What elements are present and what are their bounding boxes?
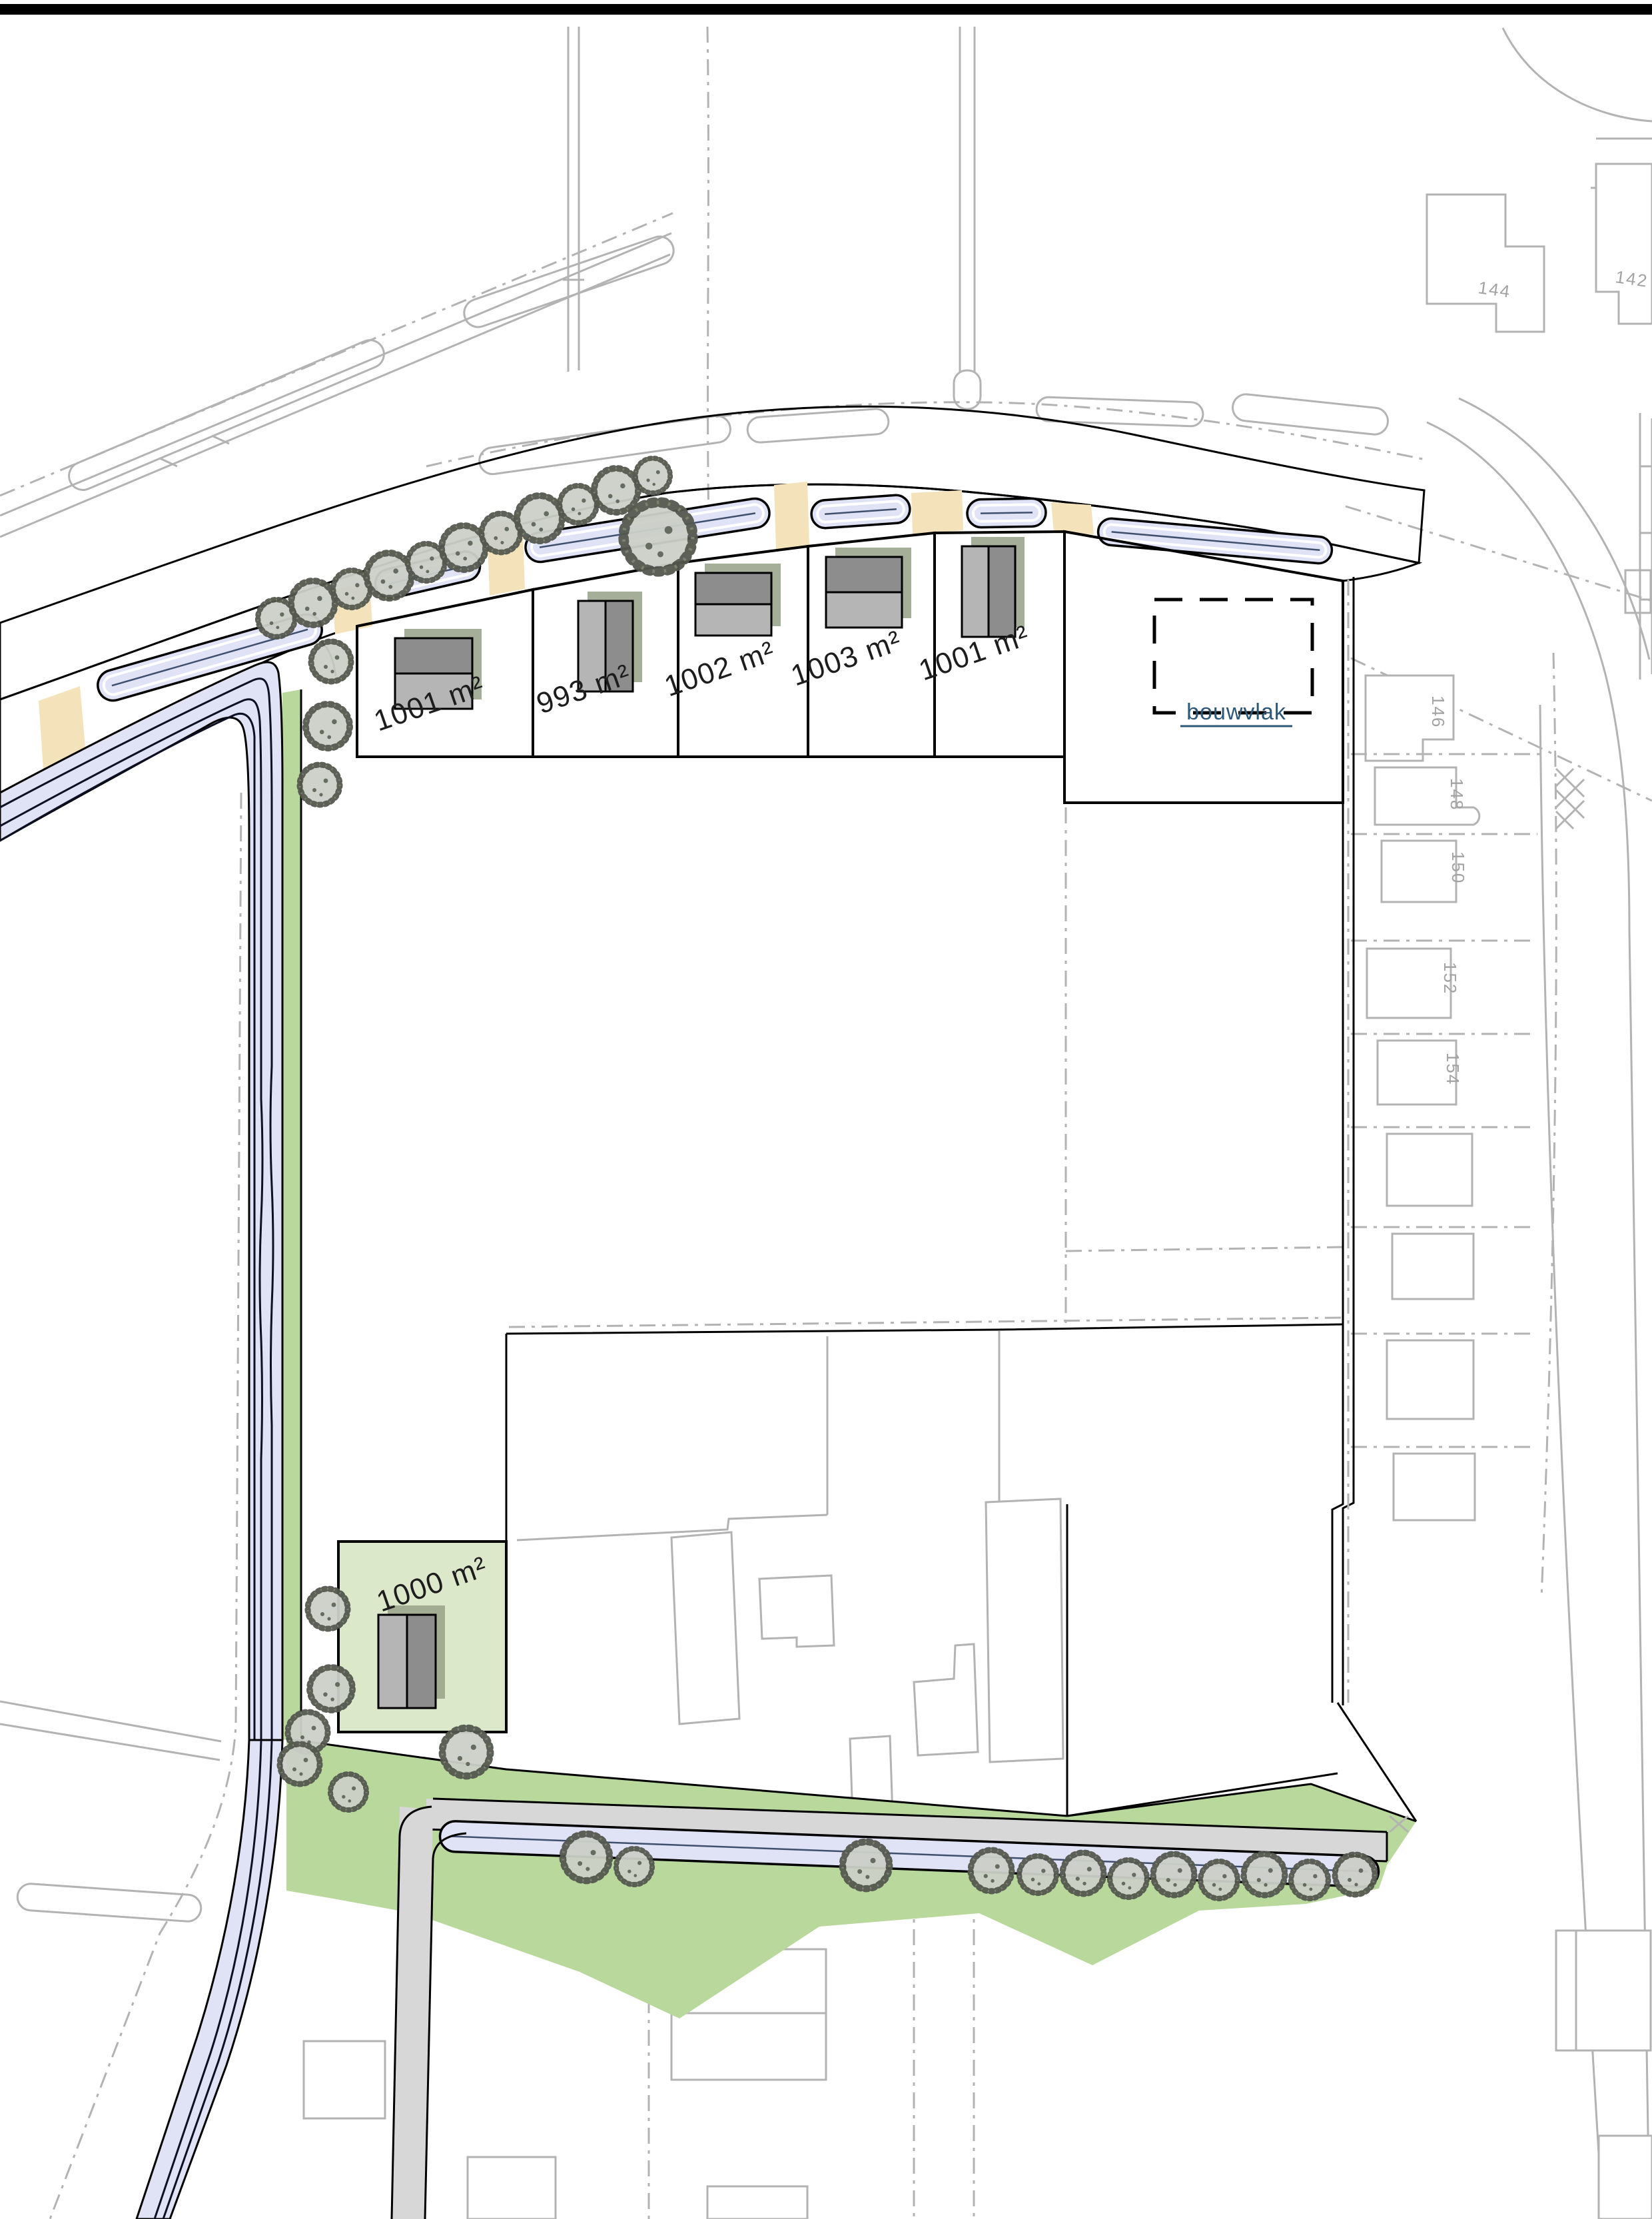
house-number-146: 146 <box>1428 695 1448 728</box>
driveway-access <box>911 490 963 534</box>
plot-1: 1001 m² <box>357 590 533 757</box>
field-and-farmyard <box>506 1324 1343 1818</box>
tree-symbol <box>623 502 693 572</box>
tree-symbol <box>616 1849 652 1885</box>
building-roof-dark <box>826 557 902 592</box>
water-ditch-west <box>0 662 282 1740</box>
cadastre-hatch-area <box>1556 769 1584 829</box>
house-number-154: 154 <box>1443 1053 1463 1085</box>
tree-symbol <box>291 581 335 625</box>
tree-symbol <box>1200 1861 1238 1899</box>
tree-symbol <box>280 1744 320 1784</box>
plot-4: 1003 m² <box>787 533 935 757</box>
tree-symbol <box>1335 1855 1375 1895</box>
tree-symbol <box>306 704 350 748</box>
tree-symbol <box>1019 1856 1056 1893</box>
tree-symbol <box>308 1589 348 1629</box>
building-roof-dark <box>395 638 472 673</box>
house-number-148: 148 <box>1447 778 1467 811</box>
existing-house-150: 150 <box>1382 841 1468 902</box>
existing-house-142: 142 <box>1596 164 1652 324</box>
tree-symbol <box>311 642 351 681</box>
building-roof-light <box>695 604 771 636</box>
building-roof-light <box>826 592 902 628</box>
tree-symbol <box>442 526 486 570</box>
site-plan-page: 144 142 146 148 150 152 154 <box>0 0 1652 2219</box>
tree-symbol <box>1153 1854 1194 1895</box>
existing-house-144: 144 <box>1427 195 1544 332</box>
water-ditch-southwest <box>137 1740 282 2219</box>
plot-area-label: 1003 m² <box>787 624 906 692</box>
existing-farm-buildings <box>671 1499 1063 1818</box>
tree-symbol <box>1244 1854 1285 1895</box>
tree-symbol <box>1062 1853 1104 1894</box>
tree-symbol <box>330 1774 366 1810</box>
west-verge-strip <box>282 689 301 1740</box>
west-watercourse <box>0 662 301 1740</box>
existing-house-148: 148 <box>1375 767 1479 825</box>
tree-symbol <box>563 1834 610 1881</box>
roadside-verge <box>0 482 1419 793</box>
tree-symbol <box>594 468 638 512</box>
plot-5: 1001 m² <box>915 532 1064 757</box>
building-roof-dark <box>407 1615 436 1708</box>
plot-6-bouwvlak-parcel: bouwvlak <box>1064 532 1343 803</box>
water-ditch <box>811 494 911 529</box>
bouwvlak-outline <box>1154 600 1312 713</box>
tree-symbol <box>366 553 412 598</box>
building-roof-light <box>962 546 989 637</box>
water-ditch <box>967 498 1046 528</box>
tree-symbol <box>517 496 562 541</box>
tree-symbol <box>971 1850 1012 1891</box>
tree-symbol <box>635 458 670 493</box>
site-plan-drawing: 144 142 146 148 150 152 154 <box>0 0 1652 2219</box>
tree-symbol <box>843 1842 889 1889</box>
building-roof-light <box>378 1615 407 1708</box>
existing-house-154: 154 <box>1378 1041 1463 1105</box>
plot-3: 1002 m² <box>660 546 808 757</box>
driveway-access <box>1051 502 1094 534</box>
house-number-150: 150 <box>1448 851 1468 884</box>
plot-parcel <box>1064 532 1343 803</box>
tree-symbol <box>1110 1860 1147 1897</box>
map-frame-top-border <box>0 4 1652 15</box>
existing-house-152: 152 <box>1367 949 1460 1018</box>
plot-building <box>826 548 911 628</box>
plot-6: 1000 m² <box>338 1542 506 1732</box>
tree-symbol <box>442 1728 490 1776</box>
plot-building <box>695 564 781 636</box>
building-roof-dark <box>695 573 771 604</box>
house-number-152: 152 <box>1440 962 1460 995</box>
tree-symbol <box>310 1667 352 1710</box>
plot-2: 993 m² <box>532 563 678 757</box>
tree-symbol <box>300 765 340 805</box>
existing-house-146: 146 <box>1366 675 1453 761</box>
driveway-access <box>774 482 809 550</box>
tree-symbol <box>1291 1861 1328 1899</box>
plot-building <box>378 1605 445 1708</box>
bouwvlak-label: bouwvlak <box>1186 699 1286 725</box>
